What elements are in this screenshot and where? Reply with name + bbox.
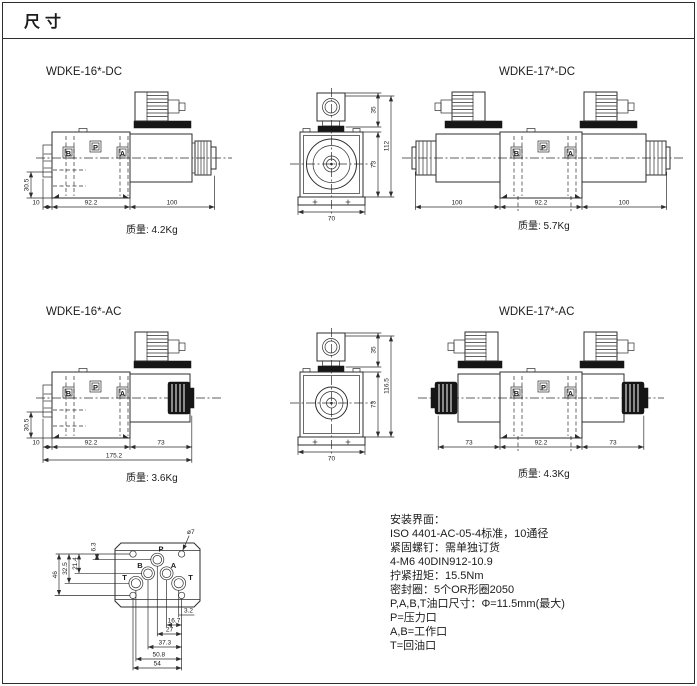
drawing-label: WDKE-17*-AC [499, 306, 574, 318]
port-p-label: P [541, 383, 546, 392]
note-line-0: 安装界面： [390, 512, 445, 526]
cable-gland [168, 100, 179, 113]
note-line-4: 拧紧扭矩：15.5Nm [390, 568, 484, 582]
solenoid-nut-left [435, 382, 457, 414]
mass-caption: 质量: 4.2Kg [126, 224, 178, 236]
solenoid-nut-right [622, 382, 644, 414]
dim-bottom-5: 54 [154, 661, 162, 668]
bolt-hole [130, 551, 136, 557]
drawing-label: WDKE-16*-AC [46, 306, 121, 318]
dim-left-1: 21.4 [72, 557, 79, 570]
note-line-6: P,A,B,T油口尺寸：Φ=11.5mm(最大) [390, 596, 565, 610]
dim-overall: 175.2 [106, 453, 123, 460]
din-connector [317, 93, 345, 121]
note-line-2: 紧固螺钉：需单独订货 [390, 540, 500, 554]
hole-diameter-label: ø7 [187, 529, 195, 536]
dim-bottom-1: 16.7 [168, 618, 181, 625]
dim-connector: 35 [371, 346, 378, 354]
port-a-label: A [568, 149, 574, 158]
port-a: A [565, 147, 576, 158]
port-p-label: P [93, 143, 98, 152]
din-connector [317, 333, 345, 361]
dim-connector: 35 [371, 106, 378, 114]
dim-body: 73 [371, 401, 378, 409]
dimensions-sheet: 尺寸 WDKE-16*-DC B P A 30.5 [0, 0, 697, 686]
port-b-label: B [514, 149, 520, 158]
port-p: P [90, 381, 101, 392]
dim-offset: 10 [32, 200, 40, 207]
port-b: B [63, 387, 74, 398]
note-line-1: ISO 4401-AC-05-4标准，10通径 [390, 526, 548, 540]
dim-total: 112 [384, 140, 391, 151]
mass-caption: 质量: 5.7Kg [518, 220, 570, 232]
page-frame: 尺寸 [3, 3, 695, 684]
note-line-9: T=回油口 [390, 638, 436, 652]
note-line-8: A,B=工作口 [390, 625, 447, 638]
port-b-label: B [66, 149, 72, 158]
port-p: P [90, 141, 101, 152]
drawing-wdke16ac: WDKE-16*-AC B P A 30.5 10 92.2 73 175.2 [24, 306, 223, 484]
drawing-label: WDKE-17*-DC [499, 66, 575, 78]
port-t-right-label: T [188, 573, 193, 582]
bolt-hole [178, 551, 184, 557]
valve-body [52, 372, 130, 438]
dim-offset: 10 [32, 440, 40, 447]
dim-bottom-0: 3.2 [184, 608, 193, 615]
dim-left: 73 [465, 440, 473, 447]
mass-caption: 质量: 3.6Kg [126, 472, 178, 484]
page-title: 尺寸 [24, 12, 66, 31]
mounting-interface-drawing: P B A T T ø7 6.3 21.4 32.5 46 3.2 16.7 [52, 529, 200, 670]
dim-body: 92.2 [85, 440, 98, 447]
connector-base-band [134, 361, 191, 368]
bolt-hole [178, 592, 184, 598]
dim-height: 30.5 [24, 178, 31, 191]
dim-bottom-3: 37.3 [158, 640, 171, 647]
datasheet-page: 尺寸 WDKE-16*-DC B P A 30.5 [0, 0, 697, 686]
port-a: A [117, 387, 128, 398]
note-line-3: 4-M6 40DIN912-10.9 [390, 556, 493, 568]
dim-solenoid: 73 [157, 440, 165, 447]
cable-gland [168, 340, 179, 353]
port-b-label: B [66, 389, 72, 398]
drawing-label: WDKE-16*-DC [46, 66, 122, 78]
solenoid-nut [168, 382, 190, 414]
port-b-label: B [137, 561, 143, 570]
mass-caption: 质量: 4.3Kg [518, 468, 570, 480]
port-p: P [538, 381, 549, 392]
dim-body: 92.2 [85, 200, 98, 207]
dim-width: 70 [328, 216, 336, 223]
port-b-label: B [514, 389, 520, 398]
dim-body: 73 [371, 161, 378, 169]
valve-body [52, 132, 130, 198]
dim-left-0: 6.3 [91, 542, 98, 551]
notes-block: 安装界面： ISO 4401-AC-05-4标准，10通径 紧固螺钉：需单独订货… [390, 512, 565, 652]
dim-left: 100 [452, 200, 463, 207]
dim-body: 92.2 [535, 440, 548, 447]
port-p-label: P [158, 545, 163, 554]
connector-base-band [134, 121, 191, 128]
port-b: B [63, 147, 74, 158]
port-b: B [511, 387, 522, 398]
port-a-label: A [171, 561, 177, 570]
port-t-left-label: T [122, 573, 127, 582]
dim-right: 100 [619, 200, 630, 207]
drawing-wdke16dc: WDKE-16*-DC B P A 30.5 [24, 66, 233, 236]
drawing-wdke17ac: WDKE-17*-AC B P A 73 92.2 73 [418, 306, 664, 480]
port-a: A [117, 147, 128, 158]
dim-body: 92.2 [535, 200, 548, 207]
drawing-front-dc: 70 35 73 112 [290, 88, 394, 223]
port-p: P [538, 141, 549, 152]
dim-bottom-2: 27 [166, 627, 174, 634]
port-a-label: A [120, 149, 126, 158]
dim-bottom-4: 50.8 [152, 652, 165, 659]
dim-right: 73 [609, 440, 617, 447]
drawing-front-ac: 70 35 73 116.5 [290, 328, 394, 463]
port-a: A [565, 387, 576, 398]
port-a-label: A [568, 389, 574, 398]
note-line-7: P=压力口 [390, 611, 437, 624]
dim-solenoid: 100 [167, 200, 178, 207]
dim-height: 30.5 [24, 418, 31, 431]
drawing-wdke17dc: WDKE-17*-DC B P A [402, 66, 684, 232]
port-p-label: P [541, 143, 546, 152]
dim-width: 70 [328, 456, 336, 463]
bolt-hole [130, 592, 136, 598]
page-border [3, 3, 695, 684]
dim-total: 116.5 [384, 378, 391, 394]
port-p-label: P [93, 383, 98, 392]
dim-left-2: 32.5 [62, 562, 69, 575]
note-line-5: 密封圈：5个OR形圈2050 [390, 582, 514, 596]
port-a-label: A [120, 389, 126, 398]
dim-left-3: 46 [52, 571, 59, 579]
port-b: B [511, 147, 522, 158]
